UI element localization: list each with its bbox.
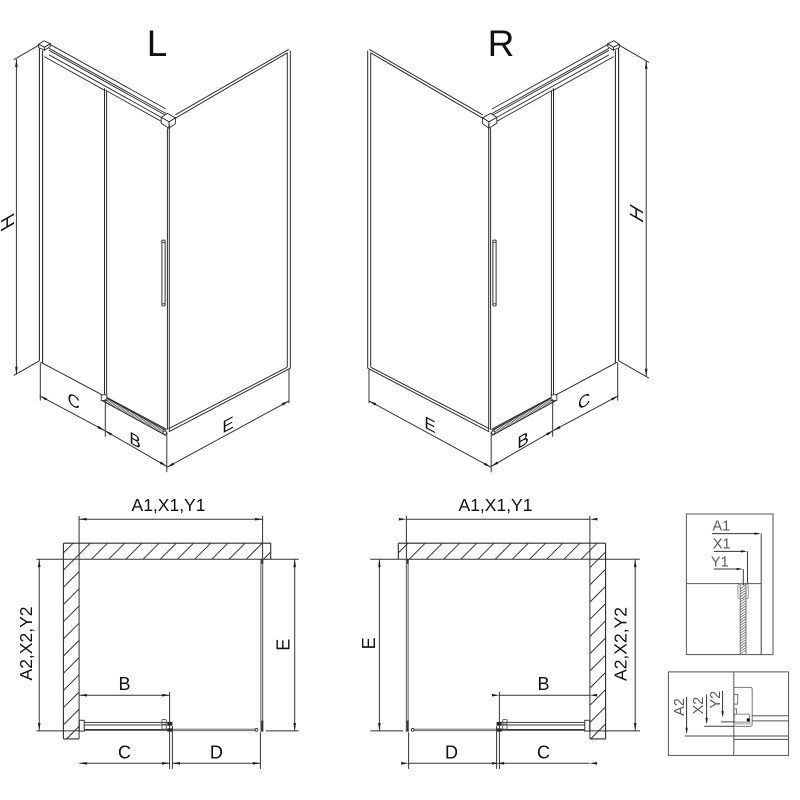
svg-text:L: L [147,23,168,64]
svg-text:A1,X1,Y1: A1,X1,Y1 [459,495,533,515]
svg-text:X1: X1 [713,536,731,552]
svg-text:X2: X2 [691,697,707,715]
svg-text:E: E [274,639,294,651]
svg-text:D: D [445,742,458,762]
svg-text:B: B [118,674,130,694]
svg-text:R: R [488,23,515,64]
svg-text:Y1: Y1 [711,554,729,570]
svg-text:Y2: Y2 [708,691,724,709]
svg-text:C: C [118,742,131,762]
svg-text:D: D [210,742,223,762]
svg-text:A2,X2,Y2: A2,X2,Y2 [611,607,631,681]
svg-text:A1: A1 [713,518,731,534]
svg-text:C: C [537,742,550,762]
svg-text:A2: A2 [672,698,688,716]
svg-text:E: E [359,637,379,649]
svg-text:A2,X2,Y2: A2,X2,Y2 [16,607,36,681]
svg-text:B: B [537,674,549,694]
svg-text:A1,X1,Y1: A1,X1,Y1 [132,495,206,515]
